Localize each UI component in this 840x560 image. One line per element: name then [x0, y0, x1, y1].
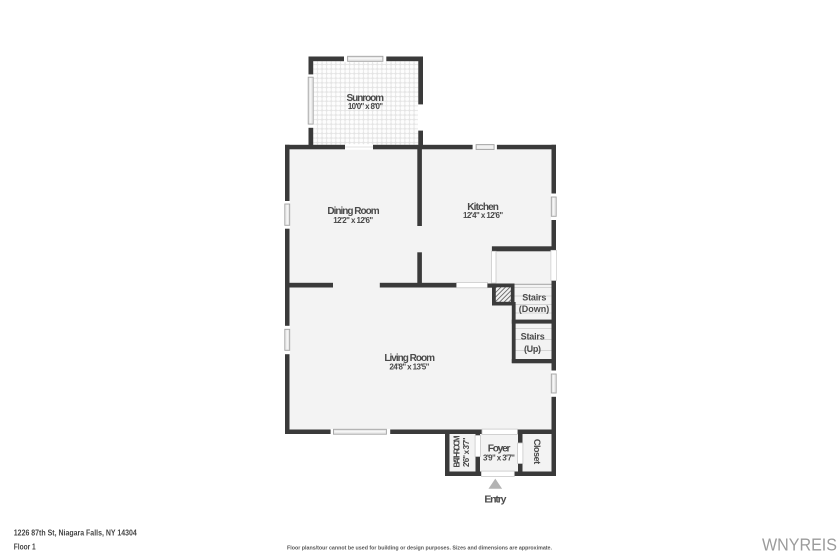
svg-text:Floor plans/tour cannot be use: Floor plans/tour cannot be used for buil…	[287, 545, 552, 551]
svg-text:WNYREIS: WNYREIS	[762, 535, 837, 555]
svg-text:3'9" x 3'7": 3'9" x 3'7"	[483, 453, 515, 462]
svg-text:BATHROOM: BATHROOM	[452, 436, 461, 468]
svg-text:2'6" x 3'7": 2'6" x 3'7"	[462, 437, 471, 467]
svg-text:12'4" x 12'6": 12'4" x 12'6"	[463, 211, 503, 220]
svg-text:(Up): (Up)	[524, 344, 541, 354]
svg-text:12'2" x 12'6": 12'2" x 12'6"	[333, 216, 373, 225]
svg-text:Closet: Closet	[532, 439, 542, 464]
svg-text:Entry: Entry	[484, 494, 506, 506]
svg-text:1226 87th St, Niagara Falls, N: 1226 87th St, Niagara Falls, NY 14304	[14, 529, 138, 538]
svg-text:Stairs: Stairs	[522, 292, 546, 302]
svg-text:(Down): (Down)	[519, 304, 550, 314]
svg-text:Stairs: Stairs	[521, 331, 545, 341]
svg-text:10'0" x 8'0": 10'0" x 8'0"	[348, 102, 383, 111]
svg-text:24'8" x 13'5": 24'8" x 13'5"	[389, 362, 429, 371]
svg-text:Floor 1: Floor 1	[14, 542, 36, 551]
